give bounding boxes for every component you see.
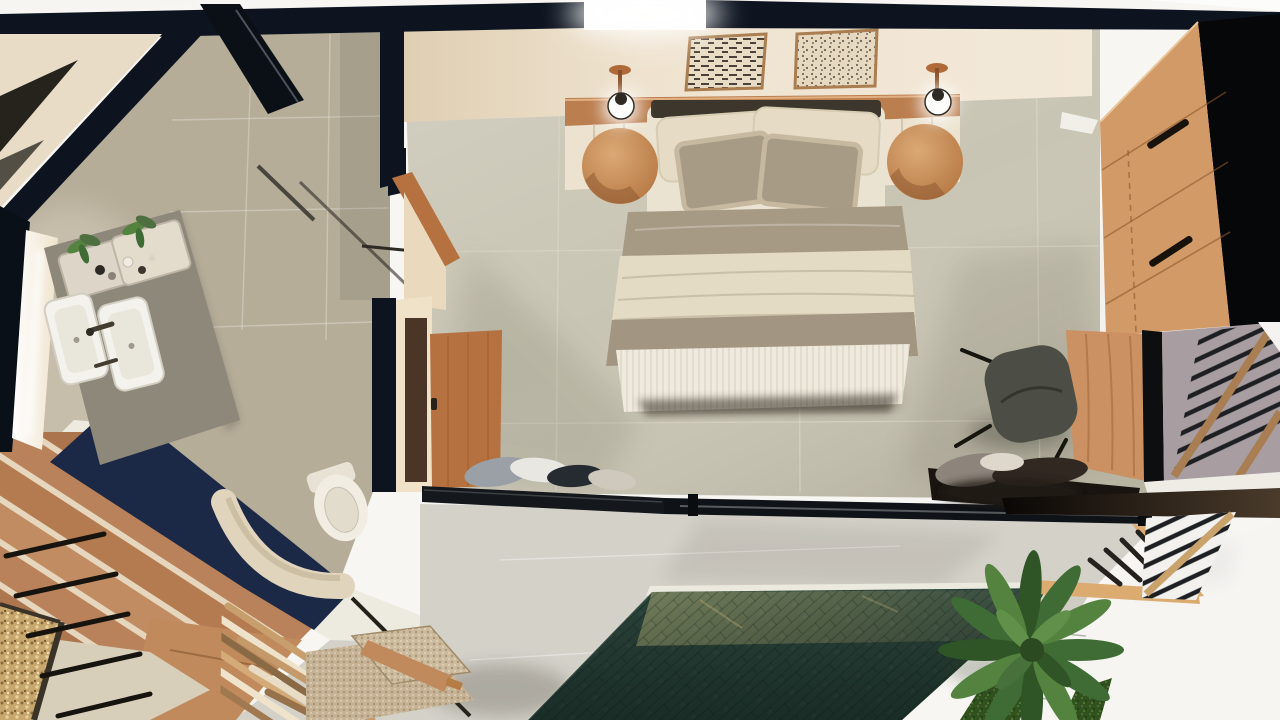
desk-top — [1066, 330, 1150, 482]
window-frame — [1142, 330, 1164, 484]
jar — [123, 257, 133, 267]
render-canvas — [0, 0, 1280, 720]
lamp-socket — [615, 93, 627, 105]
nightstand-right — [887, 124, 963, 200]
wall-art-dot-panel — [795, 30, 877, 88]
nightstand-left — [582, 128, 658, 204]
pillow-taupe-right — [759, 135, 862, 213]
door-handle — [431, 398, 437, 410]
jar — [149, 255, 155, 261]
wall-art-dash-panel — [686, 34, 766, 90]
door-frame-shadow — [405, 318, 427, 482]
bottle — [138, 266, 146, 274]
lamp-socket — [932, 89, 944, 101]
door-wall-strip — [372, 298, 396, 492]
bottle — [108, 272, 116, 280]
faucet-base — [86, 328, 94, 336]
glass-wall-post — [688, 494, 698, 516]
floorplan-render — [0, 0, 1280, 720]
plant-core — [1020, 638, 1044, 662]
throw-cloth — [980, 453, 1024, 471]
bottle — [95, 265, 105, 275]
